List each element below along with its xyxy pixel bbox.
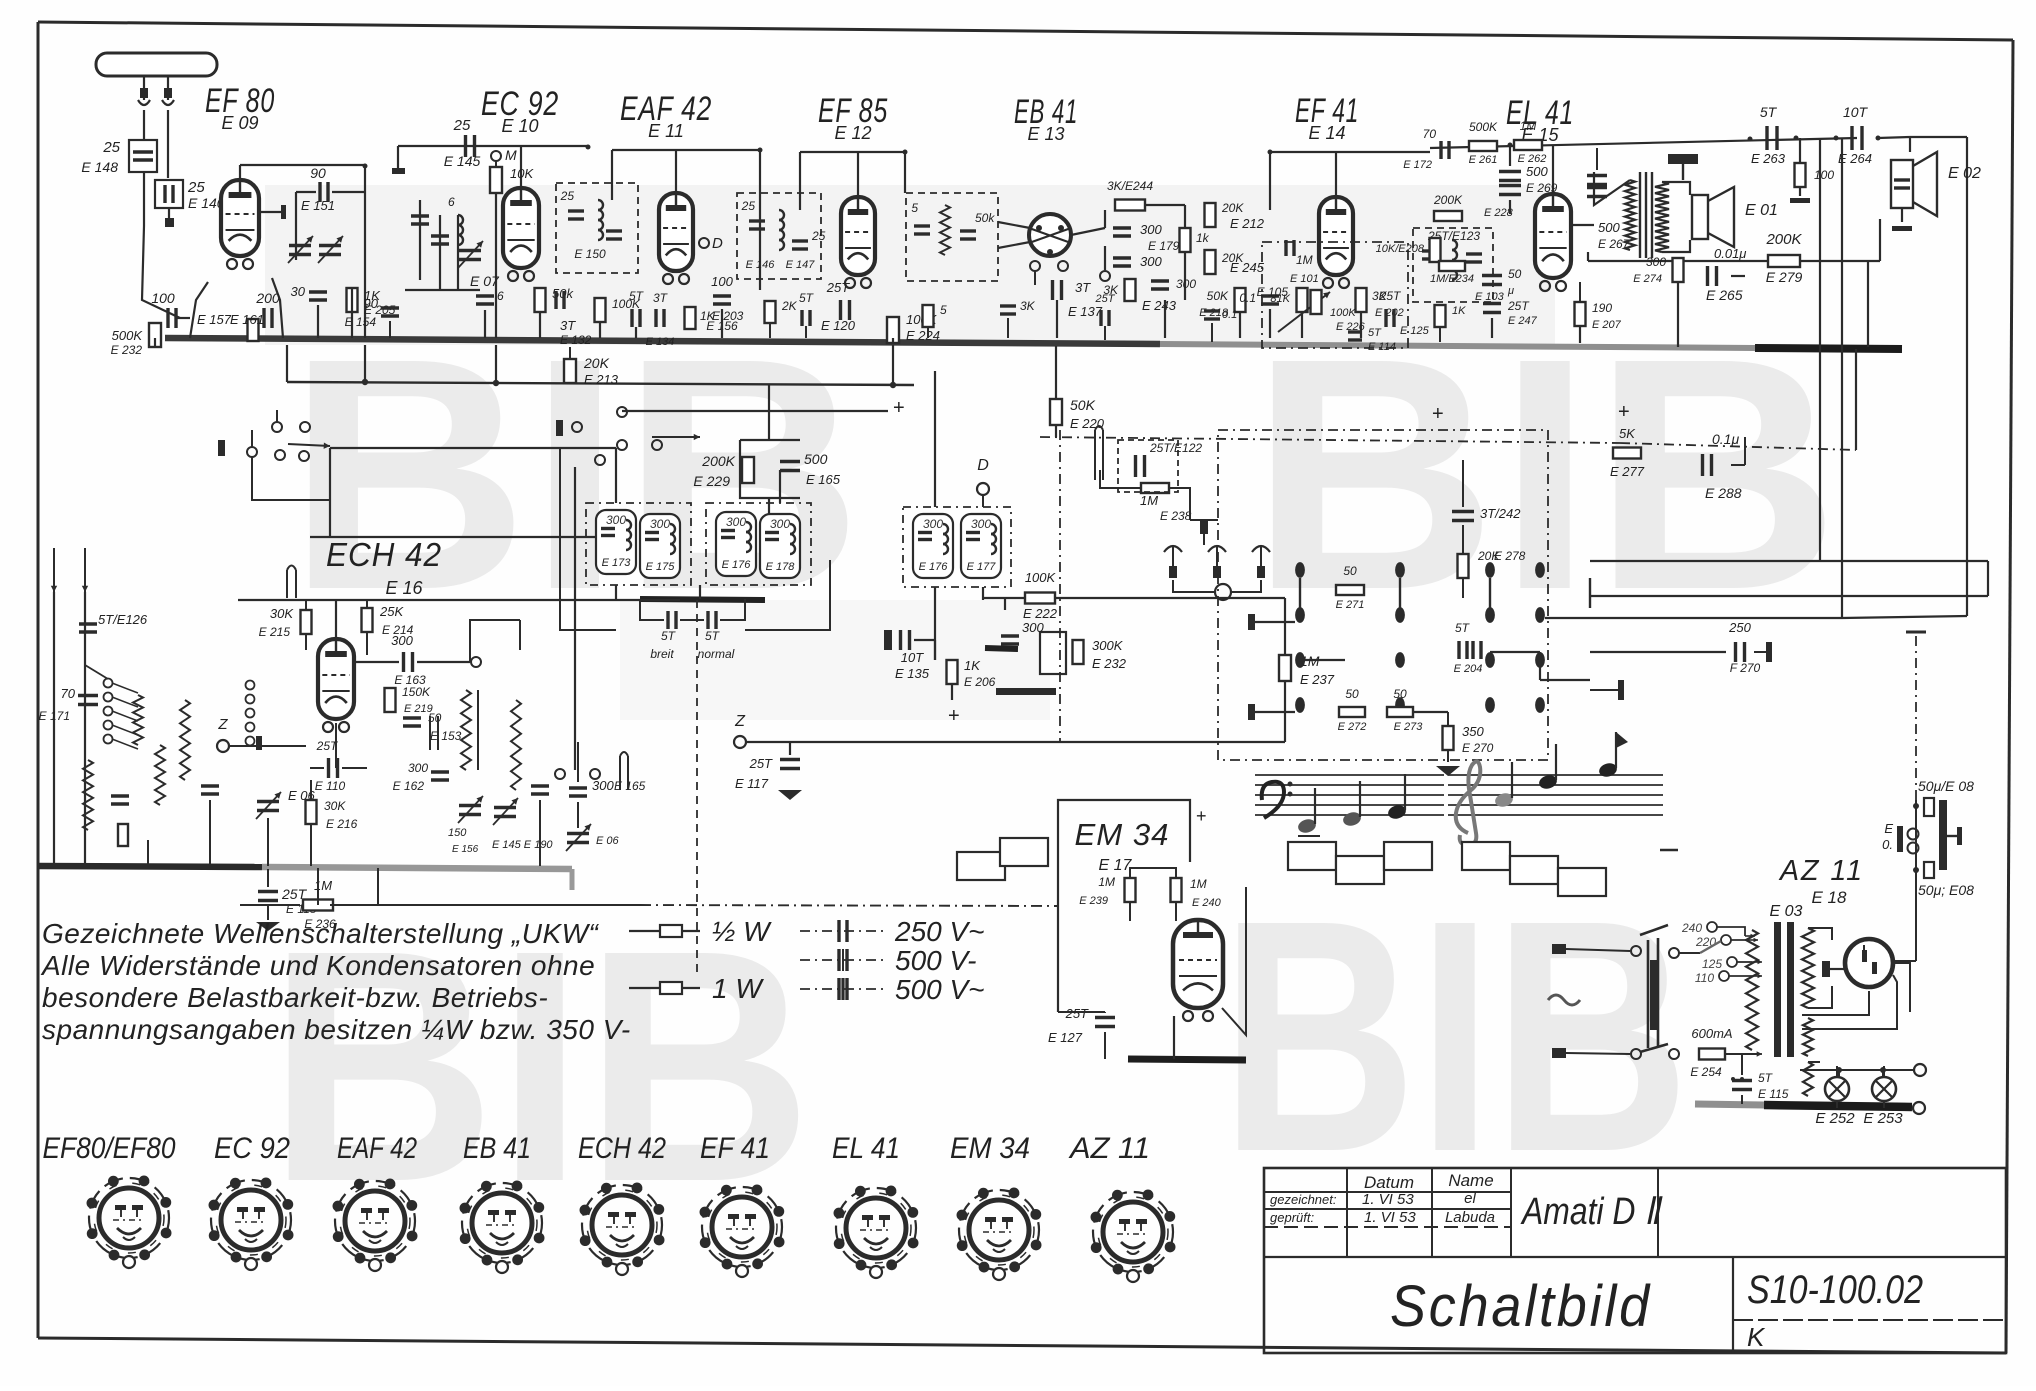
svg-text:220: 220 bbox=[1695, 935, 1716, 949]
svg-text:E 252: E 252 bbox=[1815, 1110, 1855, 1127]
svg-text:E 178: E 178 bbox=[766, 561, 796, 573]
svg-text:E 202: E 202 bbox=[1375, 307, 1404, 319]
svg-text:25: 25 bbox=[560, 189, 575, 203]
svg-text:E 115: E 115 bbox=[1758, 1087, 1789, 1101]
svg-text:5T: 5T bbox=[705, 629, 721, 643]
svg-text:200K: 200K bbox=[701, 453, 735, 469]
svg-text:50: 50 bbox=[1508, 267, 1522, 281]
svg-text:BIB: BIB bbox=[1220, 851, 1690, 1220]
svg-text:E 13: E 13 bbox=[1027, 124, 1064, 144]
svg-text:E 161: E 161 bbox=[230, 312, 264, 327]
svg-text:Labuda: Labuda bbox=[1445, 1209, 1495, 1226]
svg-text:6: 6 bbox=[497, 289, 504, 303]
svg-text:50μ/E 08: 50μ/E 08 bbox=[1918, 778, 1974, 794]
svg-text:E 110: E 110 bbox=[315, 779, 346, 793]
svg-text:300: 300 bbox=[1176, 277, 1196, 291]
svg-text:5T: 5T bbox=[799, 291, 815, 305]
svg-text:Schaltbild: Schaltbild bbox=[1390, 1274, 1652, 1339]
svg-text:E 125: E 125 bbox=[1400, 325, 1430, 337]
svg-text:25: 25 bbox=[102, 139, 120, 156]
svg-text:50K: 50K bbox=[1070, 397, 1096, 413]
svg-text:E 157: E 157 bbox=[197, 312, 232, 327]
svg-text:E 10: E 10 bbox=[501, 116, 538, 136]
svg-text:25: 25 bbox=[741, 199, 756, 213]
svg-text:E 232: E 232 bbox=[111, 343, 143, 357]
svg-text:gezeichnet:: gezeichnet: bbox=[1270, 1192, 1337, 1207]
svg-text:50K: 50K bbox=[1207, 289, 1229, 303]
svg-text:300: 300 bbox=[1646, 255, 1666, 269]
svg-text:E 151: E 151 bbox=[301, 198, 335, 213]
svg-text:300: 300 bbox=[770, 517, 790, 531]
svg-text:EL 41: EL 41 bbox=[832, 1132, 900, 1165]
svg-text:E 229: E 229 bbox=[693, 473, 730, 489]
svg-text:25T/E122: 25T/E122 bbox=[1149, 441, 1202, 455]
svg-text:5: 5 bbox=[940, 303, 947, 317]
svg-text:10T: 10T bbox=[1843, 104, 1869, 120]
svg-text:25T: 25T bbox=[1065, 1006, 1089, 1021]
svg-text:150: 150 bbox=[448, 827, 467, 839]
svg-text:5T: 5T bbox=[661, 629, 677, 643]
svg-text:100: 100 bbox=[1814, 168, 1834, 182]
svg-text:D: D bbox=[977, 457, 989, 474]
svg-text:E 153: E 153 bbox=[430, 729, 462, 743]
svg-text:1M: 1M bbox=[1296, 253, 1313, 267]
svg-text:E 147: E 147 bbox=[786, 259, 816, 271]
svg-text:E 07: E 07 bbox=[470, 273, 500, 289]
svg-text:E 154: E 154 bbox=[345, 315, 377, 329]
svg-text:+: + bbox=[1196, 806, 1207, 826]
svg-text:300K: 300K bbox=[1092, 638, 1124, 653]
svg-text:E 176: E 176 bbox=[919, 561, 949, 573]
svg-text:300: 300 bbox=[650, 517, 670, 531]
svg-text:25: 25 bbox=[187, 179, 205, 196]
svg-text:E 240: E 240 bbox=[1192, 897, 1222, 909]
svg-text:250: 250 bbox=[1728, 620, 1751, 635]
svg-text:E 06: E 06 bbox=[596, 835, 620, 847]
svg-text:normal: normal bbox=[698, 647, 735, 661]
svg-text:ECH 42: ECH 42 bbox=[326, 536, 442, 573]
svg-text:E 16: E 16 bbox=[385, 578, 423, 598]
svg-text:E 243: E 243 bbox=[1142, 298, 1177, 313]
svg-text:125: 125 bbox=[1702, 957, 1722, 971]
svg-text:EF80/EF80: EF80/EF80 bbox=[43, 1132, 176, 1165]
svg-text:Datum: Datum bbox=[1364, 1173, 1414, 1192]
svg-text:E 176: E 176 bbox=[722, 559, 752, 571]
svg-text:5K: 5K bbox=[1619, 426, 1636, 441]
svg-text:+: + bbox=[948, 705, 960, 727]
svg-text:E 101: E 101 bbox=[1290, 273, 1319, 285]
svg-text:300: 300 bbox=[923, 517, 943, 531]
svg-text:20K: 20K bbox=[1221, 201, 1244, 215]
svg-text:5: 5 bbox=[911, 201, 918, 215]
svg-text:1M: 1M bbox=[1098, 875, 1115, 889]
svg-text:2K: 2K bbox=[781, 299, 798, 313]
svg-text:300: 300 bbox=[606, 513, 626, 527]
svg-text:3T: 3T bbox=[653, 291, 669, 305]
svg-text:150K: 150K bbox=[402, 685, 431, 699]
svg-text:EM 34: EM 34 bbox=[1075, 817, 1170, 852]
svg-text:500: 500 bbox=[1526, 164, 1548, 179]
svg-text:3T: 3T bbox=[560, 318, 576, 333]
svg-text:E 156: E 156 bbox=[452, 844, 479, 855]
svg-text:600mA: 600mA bbox=[1691, 1026, 1732, 1041]
svg-text:350: 350 bbox=[1462, 724, 1484, 739]
svg-text:30: 30 bbox=[291, 284, 306, 299]
svg-text:E 222: E 222 bbox=[1023, 606, 1058, 621]
svg-text:E 120: E 120 bbox=[821, 318, 856, 333]
svg-text:1. VI 53: 1. VI 53 bbox=[1364, 1209, 1416, 1226]
svg-text:+: + bbox=[1432, 403, 1444, 425]
svg-text:E 224: E 224 bbox=[906, 328, 940, 343]
svg-text:240: 240 bbox=[1681, 921, 1702, 935]
svg-text:besondere Belastbarkeit-bzw. B: besondere Belastbarkeit-bzw. Betriebs- bbox=[42, 982, 548, 1013]
svg-text:50: 50 bbox=[1345, 687, 1359, 701]
svg-text:25T: 25T bbox=[826, 280, 850, 295]
svg-text:E 09: E 09 bbox=[221, 113, 258, 133]
svg-text:E 165: E 165 bbox=[806, 472, 841, 487]
svg-text:1K: 1K bbox=[1452, 305, 1466, 317]
svg-text:E 277: E 277 bbox=[1610, 464, 1645, 479]
svg-text:E 177: E 177 bbox=[967, 561, 997, 573]
svg-text:3K/E244: 3K/E244 bbox=[1107, 179, 1153, 193]
svg-text:100: 100 bbox=[711, 274, 733, 289]
svg-text:E 12: E 12 bbox=[834, 123, 871, 143]
svg-text:0.1: 0.1 bbox=[1222, 309, 1237, 321]
svg-text:E 103: E 103 bbox=[1475, 291, 1505, 303]
svg-text:breit: breit bbox=[650, 647, 674, 661]
svg-text:1M: 1M bbox=[1140, 493, 1158, 508]
svg-text:70: 70 bbox=[61, 686, 76, 701]
svg-text:M: M bbox=[505, 147, 517, 163]
svg-text:Z: Z bbox=[217, 716, 228, 733]
svg-text:50: 50 bbox=[1393, 687, 1407, 701]
svg-text:0.01μ: 0.01μ bbox=[1714, 246, 1746, 261]
svg-text:E 207: E 207 bbox=[1592, 319, 1622, 331]
svg-text:AZ 11: AZ 11 bbox=[1068, 1132, 1150, 1165]
svg-text:E 264: E 264 bbox=[1838, 151, 1872, 166]
svg-text:E 261: E 261 bbox=[1469, 154, 1498, 166]
svg-text:E 105: E 105 bbox=[1257, 285, 1289, 299]
svg-text:E 245: E 245 bbox=[1230, 260, 1265, 275]
svg-text:E 14: E 14 bbox=[1308, 123, 1345, 143]
svg-text:Alle Widerstände und Kondensat: Alle Widerstände und Kondensatoren ohne bbox=[40, 950, 595, 981]
svg-text:E: E bbox=[1884, 821, 1893, 836]
svg-text:500 V~: 500 V~ bbox=[895, 974, 985, 1005]
svg-text:E 213: E 213 bbox=[584, 372, 619, 387]
svg-text:90: 90 bbox=[310, 165, 326, 181]
svg-text:300: 300 bbox=[726, 515, 746, 529]
svg-text:25T: 25T bbox=[1379, 289, 1402, 303]
svg-text:+: + bbox=[893, 397, 905, 419]
svg-text:E 135: E 135 bbox=[895, 666, 930, 681]
svg-text:E 179: E 179 bbox=[1148, 239, 1180, 253]
svg-text:Gezeichnete Wellenschalterstel: Gezeichnete Wellenschalterstellung „UKW“ bbox=[42, 918, 600, 949]
svg-text:E 263: E 263 bbox=[1751, 151, 1786, 166]
svg-text:500K: 500K bbox=[1469, 120, 1498, 134]
svg-text:E 247: E 247 bbox=[1508, 315, 1538, 327]
svg-text:E 117: E 117 bbox=[735, 776, 769, 791]
svg-text:3T/242: 3T/242 bbox=[1480, 506, 1521, 521]
svg-text:E 134: E 134 bbox=[646, 336, 675, 348]
svg-text:D: D bbox=[712, 235, 723, 252]
svg-text:10K/E208: 10K/E208 bbox=[1376, 243, 1425, 255]
svg-text:E 18: E 18 bbox=[1812, 888, 1848, 907]
svg-text:0.1μ: 0.1μ bbox=[1712, 431, 1739, 447]
svg-text:ECH 42: ECH 42 bbox=[578, 1132, 666, 1165]
svg-text:K: K bbox=[1747, 1322, 1766, 1352]
svg-text:E 273: E 273 bbox=[1394, 721, 1424, 733]
svg-text:300: 300 bbox=[1022, 620, 1044, 635]
svg-text:100K: 100K bbox=[1330, 307, 1356, 319]
svg-text:E 288: E 288 bbox=[1705, 485, 1742, 501]
svg-text:0.1: 0.1 bbox=[1239, 291, 1256, 305]
svg-text:μ: μ bbox=[1507, 285, 1514, 297]
svg-text:190: 190 bbox=[1592, 301, 1612, 315]
svg-text:90: 90 bbox=[364, 296, 379, 311]
svg-text:300: 300 bbox=[408, 761, 428, 775]
svg-text:E 238: E 238 bbox=[1160, 509, 1192, 523]
svg-text:500: 500 bbox=[804, 451, 828, 467]
svg-text:EB 41: EB 41 bbox=[463, 1132, 531, 1165]
svg-text:EAF 42: EAF 42 bbox=[337, 1132, 417, 1165]
svg-text:25T: 25T bbox=[749, 756, 773, 771]
svg-text:E 137: E 137 bbox=[1068, 304, 1103, 319]
svg-text:E 146: E 146 bbox=[746, 259, 776, 271]
svg-text:E 265: E 265 bbox=[1706, 287, 1743, 303]
svg-text:E 272: E 272 bbox=[1338, 721, 1367, 733]
svg-text:500 V-: 500 V- bbox=[895, 945, 976, 976]
svg-text:E 173: E 173 bbox=[602, 557, 632, 569]
svg-text:E 172: E 172 bbox=[1403, 159, 1432, 171]
svg-text:E 232: E 232 bbox=[1092, 656, 1127, 671]
svg-text:E 02: E 02 bbox=[1948, 165, 1981, 182]
svg-text:10T: 10T bbox=[901, 650, 924, 665]
svg-text:E 165: E 165 bbox=[614, 779, 646, 793]
svg-text:E 253: E 253 bbox=[1863, 1110, 1903, 1127]
svg-text:200K: 200K bbox=[1433, 193, 1463, 207]
svg-text:1M: 1M bbox=[1190, 877, 1207, 891]
svg-text:Name: Name bbox=[1448, 1171, 1493, 1190]
svg-text:25T: 25T bbox=[1095, 293, 1116, 305]
svg-text:5T: 5T bbox=[1758, 1071, 1774, 1085]
svg-text:100K: 100K bbox=[1025, 570, 1057, 585]
svg-text:E 132: E 132 bbox=[560, 333, 592, 347]
svg-text:1k: 1k bbox=[1196, 231, 1210, 245]
svg-text:1K: 1K bbox=[964, 658, 981, 673]
svg-text:geprüft:: geprüft: bbox=[1270, 1210, 1314, 1225]
svg-text:E 278: E 278 bbox=[1494, 549, 1526, 563]
svg-text:250 V~: 250 V~ bbox=[894, 916, 985, 947]
svg-text:5T: 5T bbox=[629, 289, 645, 303]
svg-text:Amati D Ⅱ: Amati D Ⅱ bbox=[1520, 1191, 1662, 1233]
svg-text:110: 110 bbox=[1695, 971, 1714, 985]
svg-text:30K: 30K bbox=[324, 799, 346, 813]
svg-text:E 145 E 190: E 145 E 190 bbox=[492, 839, 553, 851]
svg-text:E 239: E 239 bbox=[1079, 895, 1108, 907]
svg-text:EC 92: EC 92 bbox=[214, 1132, 290, 1165]
svg-text:500K: 500K bbox=[112, 328, 144, 343]
svg-text:25T: 25T bbox=[1507, 299, 1530, 313]
svg-text:E 220: E 220 bbox=[1070, 416, 1105, 431]
svg-text:E 175: E 175 bbox=[646, 561, 676, 573]
svg-text:F 270: F 270 bbox=[1730, 661, 1761, 675]
svg-text:25K: 25K bbox=[379, 604, 404, 619]
svg-text:E 237: E 237 bbox=[1300, 672, 1335, 687]
svg-text:10K: 10K bbox=[510, 166, 534, 181]
svg-text:E 145: E 145 bbox=[444, 153, 481, 169]
svg-text:50μ; E08: 50μ; E08 bbox=[1918, 882, 1974, 898]
svg-text:5T/E126: 5T/E126 bbox=[98, 612, 148, 627]
svg-text:S10-100.02: S10-100.02 bbox=[1747, 1268, 1923, 1312]
svg-text:5T: 5T bbox=[1368, 327, 1382, 339]
svg-text:E 171: E 171 bbox=[39, 709, 70, 723]
svg-text:200: 200 bbox=[255, 290, 280, 306]
svg-text:1. VI 53: 1. VI 53 bbox=[1362, 1191, 1414, 1208]
svg-text:3T: 3T bbox=[1075, 280, 1091, 295]
svg-text:300: 300 bbox=[971, 517, 991, 531]
svg-text:EF 41: EF 41 bbox=[700, 1132, 770, 1165]
svg-text:E 254: E 254 bbox=[1690, 1065, 1722, 1079]
svg-text:30K: 30K bbox=[270, 606, 294, 621]
svg-text:1M/E234: 1M/E234 bbox=[1430, 273, 1474, 285]
svg-text:el: el bbox=[1464, 1190, 1476, 1207]
svg-text:E 204: E 204 bbox=[1454, 663, 1483, 675]
svg-text:E 274: E 274 bbox=[1633, 273, 1662, 285]
svg-text:300: 300 bbox=[592, 778, 614, 793]
svg-text:E 269: E 269 bbox=[1526, 181, 1558, 195]
svg-text:0.: 0. bbox=[1882, 837, 1893, 852]
svg-text:6: 6 bbox=[448, 195, 455, 209]
svg-text:25: 25 bbox=[811, 229, 826, 243]
svg-text:1 W: 1 W bbox=[712, 973, 764, 1004]
svg-text:AZ 11: AZ 11 bbox=[1778, 855, 1864, 887]
svg-text:E 206: E 206 bbox=[964, 675, 996, 689]
svg-text:E 271: E 271 bbox=[1336, 599, 1365, 611]
svg-text:100: 100 bbox=[151, 290, 175, 306]
svg-text:3K: 3K bbox=[1020, 299, 1036, 313]
svg-text:+: + bbox=[1618, 401, 1630, 423]
svg-text:E 148: E 148 bbox=[81, 159, 118, 175]
svg-text:EM 34: EM 34 bbox=[950, 1132, 1030, 1165]
svg-text:200K: 200K bbox=[1765, 231, 1802, 248]
svg-text:300: 300 bbox=[1140, 222, 1162, 237]
svg-text:E 270: E 270 bbox=[1462, 741, 1494, 755]
svg-text:50k: 50k bbox=[975, 211, 995, 225]
svg-text:½ W: ½ W bbox=[712, 916, 772, 947]
svg-text:70: 70 bbox=[1423, 127, 1437, 141]
svg-text:E 03: E 03 bbox=[1770, 903, 1803, 920]
svg-text:300: 300 bbox=[391, 633, 413, 648]
svg-text:E 17: E 17 bbox=[1099, 857, 1133, 874]
svg-text:E 01: E 01 bbox=[1745, 202, 1778, 219]
svg-text:E 11: E 11 bbox=[648, 121, 684, 141]
svg-text:E 150: E 150 bbox=[574, 247, 606, 261]
svg-text:25: 25 bbox=[453, 117, 471, 134]
svg-text:5T: 5T bbox=[1455, 621, 1471, 635]
svg-text:E 216: E 216 bbox=[326, 817, 358, 831]
svg-text:Z: Z bbox=[734, 713, 746, 730]
svg-text:E 127: E 127 bbox=[1048, 1030, 1083, 1045]
svg-text:E 114: E 114 bbox=[1368, 341, 1396, 353]
svg-text:spannungsangaben besitzen ¼W: spannungsangaben besitzen ¼W bzw. 350 V- bbox=[42, 1014, 631, 1045]
svg-text:1M: 1M bbox=[314, 878, 332, 893]
svg-text:E 212: E 212 bbox=[1230, 216, 1265, 231]
svg-text:1M: 1M bbox=[1520, 119, 1537, 133]
svg-text:E 279: E 279 bbox=[1766, 269, 1803, 285]
svg-text:E 215: E 215 bbox=[259, 625, 291, 639]
svg-text:5T: 5T bbox=[1760, 104, 1778, 120]
svg-text:500: 500 bbox=[1598, 220, 1620, 235]
svg-text:300: 300 bbox=[1140, 254, 1162, 269]
svg-text:50: 50 bbox=[1343, 564, 1357, 578]
svg-text:E 162: E 162 bbox=[393, 779, 425, 793]
svg-text:20K: 20K bbox=[583, 355, 610, 371]
